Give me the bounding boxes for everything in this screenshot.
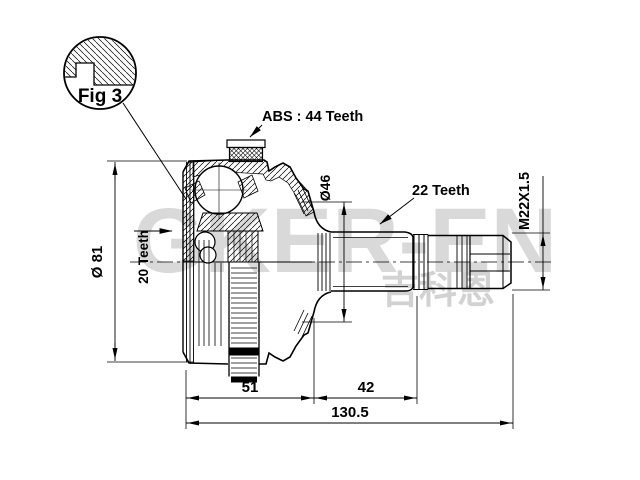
teeth22-label: 22 Teeth [412, 183, 470, 199]
boot-diameter-label: Ø46 [317, 175, 333, 202]
bore-detail-circle [200, 247, 216, 263]
fig3-detail-bubble: Fig 3 [62, 34, 186, 199]
section-hatch-back-wall [183, 162, 194, 261]
watermark: GKER-EN 吉科恩 [133, 190, 557, 312]
bell-length-label: 51 [242, 379, 259, 396]
outer-diameter-label: Ø 81 [89, 246, 106, 279]
inner-race-section [197, 213, 263, 231]
abs-tone-ring [227, 140, 265, 162]
spline-tooth-profile [62, 34, 137, 85]
drawing-svg: GKER-EN 吉科恩 Fig 3 [0, 0, 640, 480]
abs-callout: ABS : 44 Teeth [250, 109, 363, 137]
thread-label: M22X1.5 [517, 172, 533, 230]
spline-length-label: 42 [358, 379, 375, 396]
abs-label: ABS : 44 Teeth [262, 109, 363, 125]
dim-lengths: 51 42 130.5 [186, 294, 513, 429]
teeth20-label: 20 Teeth [136, 230, 151, 284]
spline-bore-section [228, 231, 258, 262]
detail-leader-line [123, 103, 186, 199]
total-length-label: 130.5 [331, 404, 369, 421]
figure-label: Fig 3 [78, 86, 122, 107]
cv-joint-technical-drawing: GKER-EN 吉科恩 Fig 3 [0, 0, 640, 480]
